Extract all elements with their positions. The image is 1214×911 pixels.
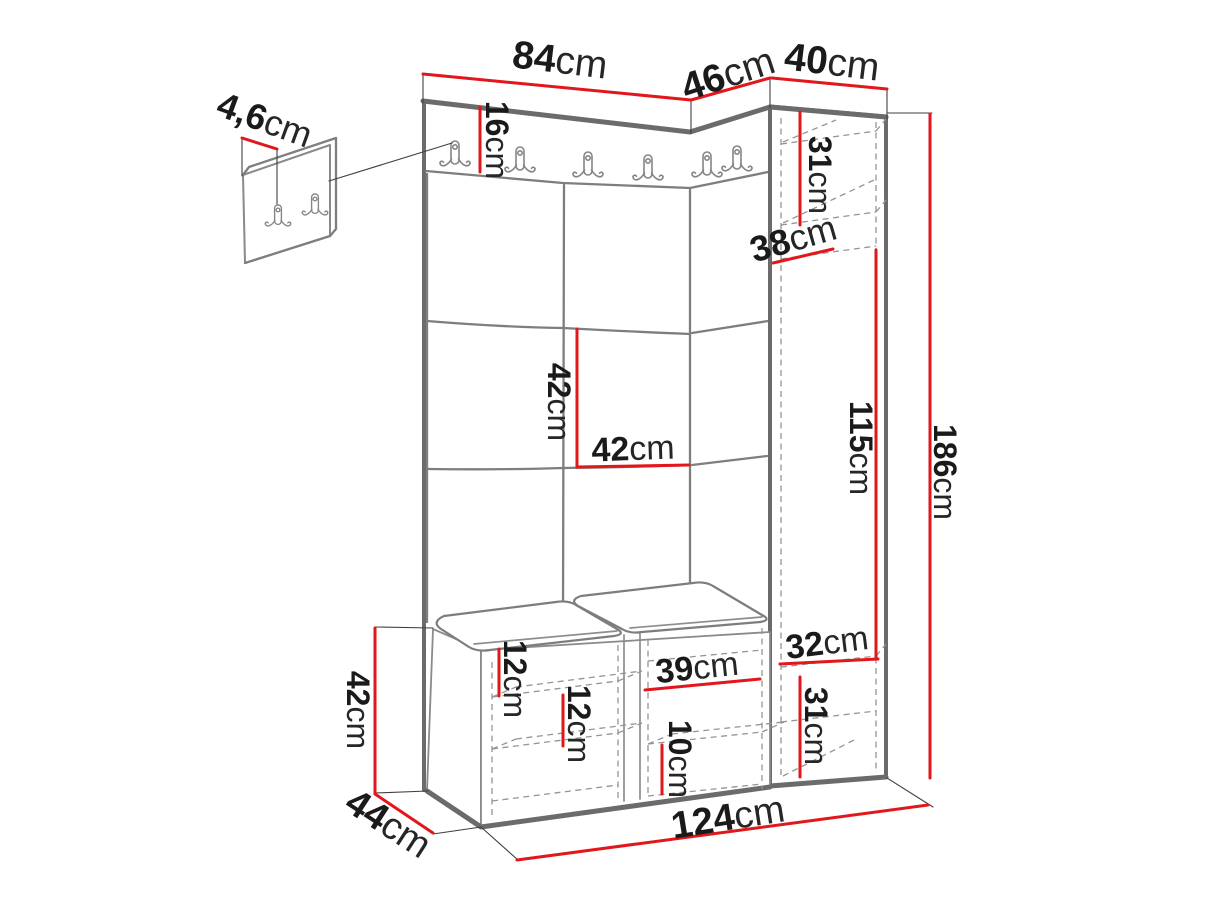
dim-bench-depth-label: 44cm bbox=[338, 781, 439, 867]
dim-main-width: 84cm bbox=[423, 33, 691, 100]
dim-bench-top-gap-label: 12cm bbox=[497, 640, 533, 718]
corner-seam-row1 bbox=[692, 321, 768, 333]
hook-plate-detail bbox=[243, 138, 452, 263]
dim-cabinet-inner-height-label: 115cm bbox=[843, 401, 879, 495]
dim-bench-niche-shelf: 10cm bbox=[662, 720, 698, 798]
dim-corner-width-label: 46cm bbox=[676, 39, 780, 109]
coat-hook-icon bbox=[440, 141, 470, 166]
dim-cabinet-width: 40cm bbox=[772, 35, 887, 89]
dim-corner-width: 46cm bbox=[676, 39, 780, 109]
coat-hook-icon bbox=[573, 152, 603, 177]
dim-panel-tile-height: 42cm bbox=[541, 329, 577, 467]
hook-plate-face bbox=[243, 145, 330, 263]
dim-main-width-label: 84cm bbox=[510, 33, 610, 87]
diagram-stage: 84cm 46cm 40cm 4,6cm 16cm 31cm 38cm bbox=[0, 0, 1214, 911]
dim-panel-tile-height-label: 42cm bbox=[541, 363, 577, 441]
furniture-dimension-drawing: 84cm 46cm 40cm 4,6cm 16cm 31cm 38cm bbox=[0, 0, 1214, 911]
dim-rail-height: 16cm bbox=[479, 101, 515, 179]
dim-total-height: 186cm bbox=[927, 114, 963, 778]
dim-hook-plate-offset: 4,6cm bbox=[212, 83, 318, 155]
dim-cabinet-bottom-height: 31cm bbox=[798, 677, 834, 777]
coat-hook-icon bbox=[692, 152, 722, 177]
dim-panel-tile-width: 42cm bbox=[577, 429, 689, 470]
corner-seam-row2 bbox=[692, 456, 767, 465]
dim-bench-depth: 44cm bbox=[338, 781, 439, 867]
dim-panel-tile-width-label: 42cm bbox=[591, 429, 675, 470]
dim-total-height-label: 186cm bbox=[927, 424, 963, 520]
coat-hook-icon bbox=[633, 155, 663, 180]
hook-rail-bottom-edge bbox=[426, 171, 768, 188]
dim-bench-height: 42cm bbox=[340, 628, 376, 793]
dim-bench-height-label: 42cm bbox=[340, 671, 376, 749]
dim-bench-shelf-gap: 12cm bbox=[561, 685, 597, 763]
shoe-bench bbox=[427, 582, 784, 827]
dim-cabinet-bottom-height-label: 31cm bbox=[798, 687, 834, 765]
coat-hook-icon bbox=[722, 146, 752, 171]
dim-bench-shelf-gap-label: 12cm bbox=[561, 685, 597, 763]
dim-bench-niche-shelf-label: 10cm bbox=[662, 720, 698, 798]
dim-rail-height-label: 16cm bbox=[479, 101, 515, 179]
panel-seam-row1 bbox=[427, 321, 690, 334]
detail-callout-line bbox=[329, 143, 452, 181]
dim-bench-top-gap: 12cm bbox=[497, 640, 533, 718]
dim-cabinet-top-shelf-label: 31cm bbox=[802, 136, 838, 214]
